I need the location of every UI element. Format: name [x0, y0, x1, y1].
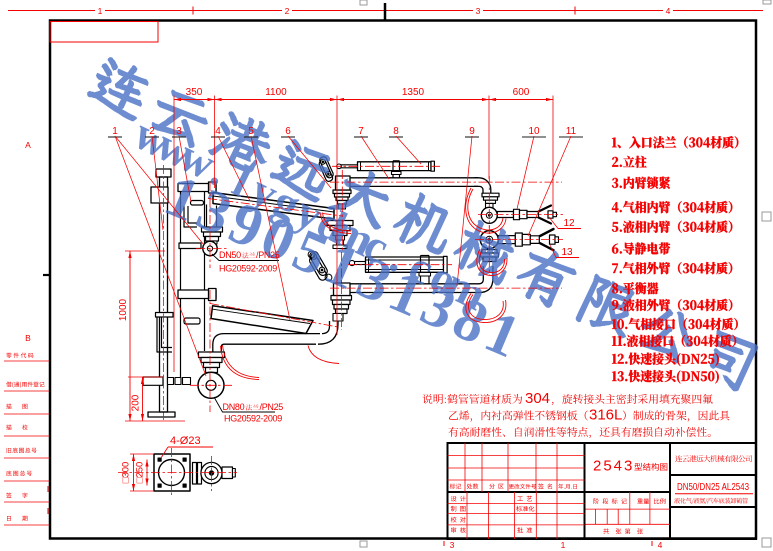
svg-text:/PN25: /PN25 [260, 402, 284, 412]
svg-text:1: 1 [98, 6, 103, 16]
svg-text:3: 3 [176, 126, 182, 137]
svg-text:2543: 2543 [593, 458, 634, 475]
svg-text:1: 1 [112, 126, 118, 137]
svg-text:1100: 1100 [265, 87, 287, 98]
svg-text:9: 9 [469, 126, 475, 137]
svg-text:HG20592-2009: HG20592-2009 [224, 414, 282, 424]
svg-text:DN50: DN50 [219, 250, 241, 260]
svg-text:1: 1 [561, 540, 566, 550]
svg-text:13: 13 [561, 247, 573, 258]
svg-text:DN80: DN80 [223, 402, 245, 412]
svg-text:4: 4 [658, 540, 663, 550]
svg-text:12: 12 [563, 218, 575, 229]
svg-text:316L: 316L [589, 407, 622, 424]
svg-text:3: 3 [476, 6, 481, 16]
svg-text:3: 3 [450, 540, 455, 550]
svg-text:7: 7 [358, 126, 364, 137]
svg-text:4-Ø23: 4-Ø23 [170, 435, 201, 447]
svg-text:5: 5 [248, 126, 254, 137]
svg-text:4: 4 [666, 6, 671, 16]
svg-text:4: 4 [215, 126, 221, 137]
svg-text:6: 6 [285, 126, 291, 137]
svg-text:10: 10 [528, 126, 540, 137]
svg-text:B: B [25, 333, 31, 343]
svg-text:8: 8 [393, 126, 399, 137]
svg-text:11: 11 [566, 126, 577, 137]
svg-text:/PN25: /PN25 [256, 250, 280, 260]
svg-text:□250: □250 [135, 462, 146, 484]
svg-text:304: 304 [525, 390, 550, 407]
svg-text:2: 2 [285, 6, 290, 16]
svg-text:350: 350 [186, 87, 203, 98]
svg-text:DN50/DN25 AL2543: DN50/DN25 AL2543 [677, 482, 749, 493]
svg-text:1000: 1000 [118, 298, 129, 321]
svg-text:HG20592-2009: HG20592-2009 [219, 264, 277, 274]
svg-text:200: 200 [131, 394, 142, 411]
svg-text:A: A [25, 140, 31, 150]
svg-text:2: 2 [149, 126, 155, 137]
svg-text:1350: 1350 [402, 87, 425, 98]
svg-text:□300: □300 [121, 462, 132, 484]
svg-text:600: 600 [513, 87, 530, 98]
